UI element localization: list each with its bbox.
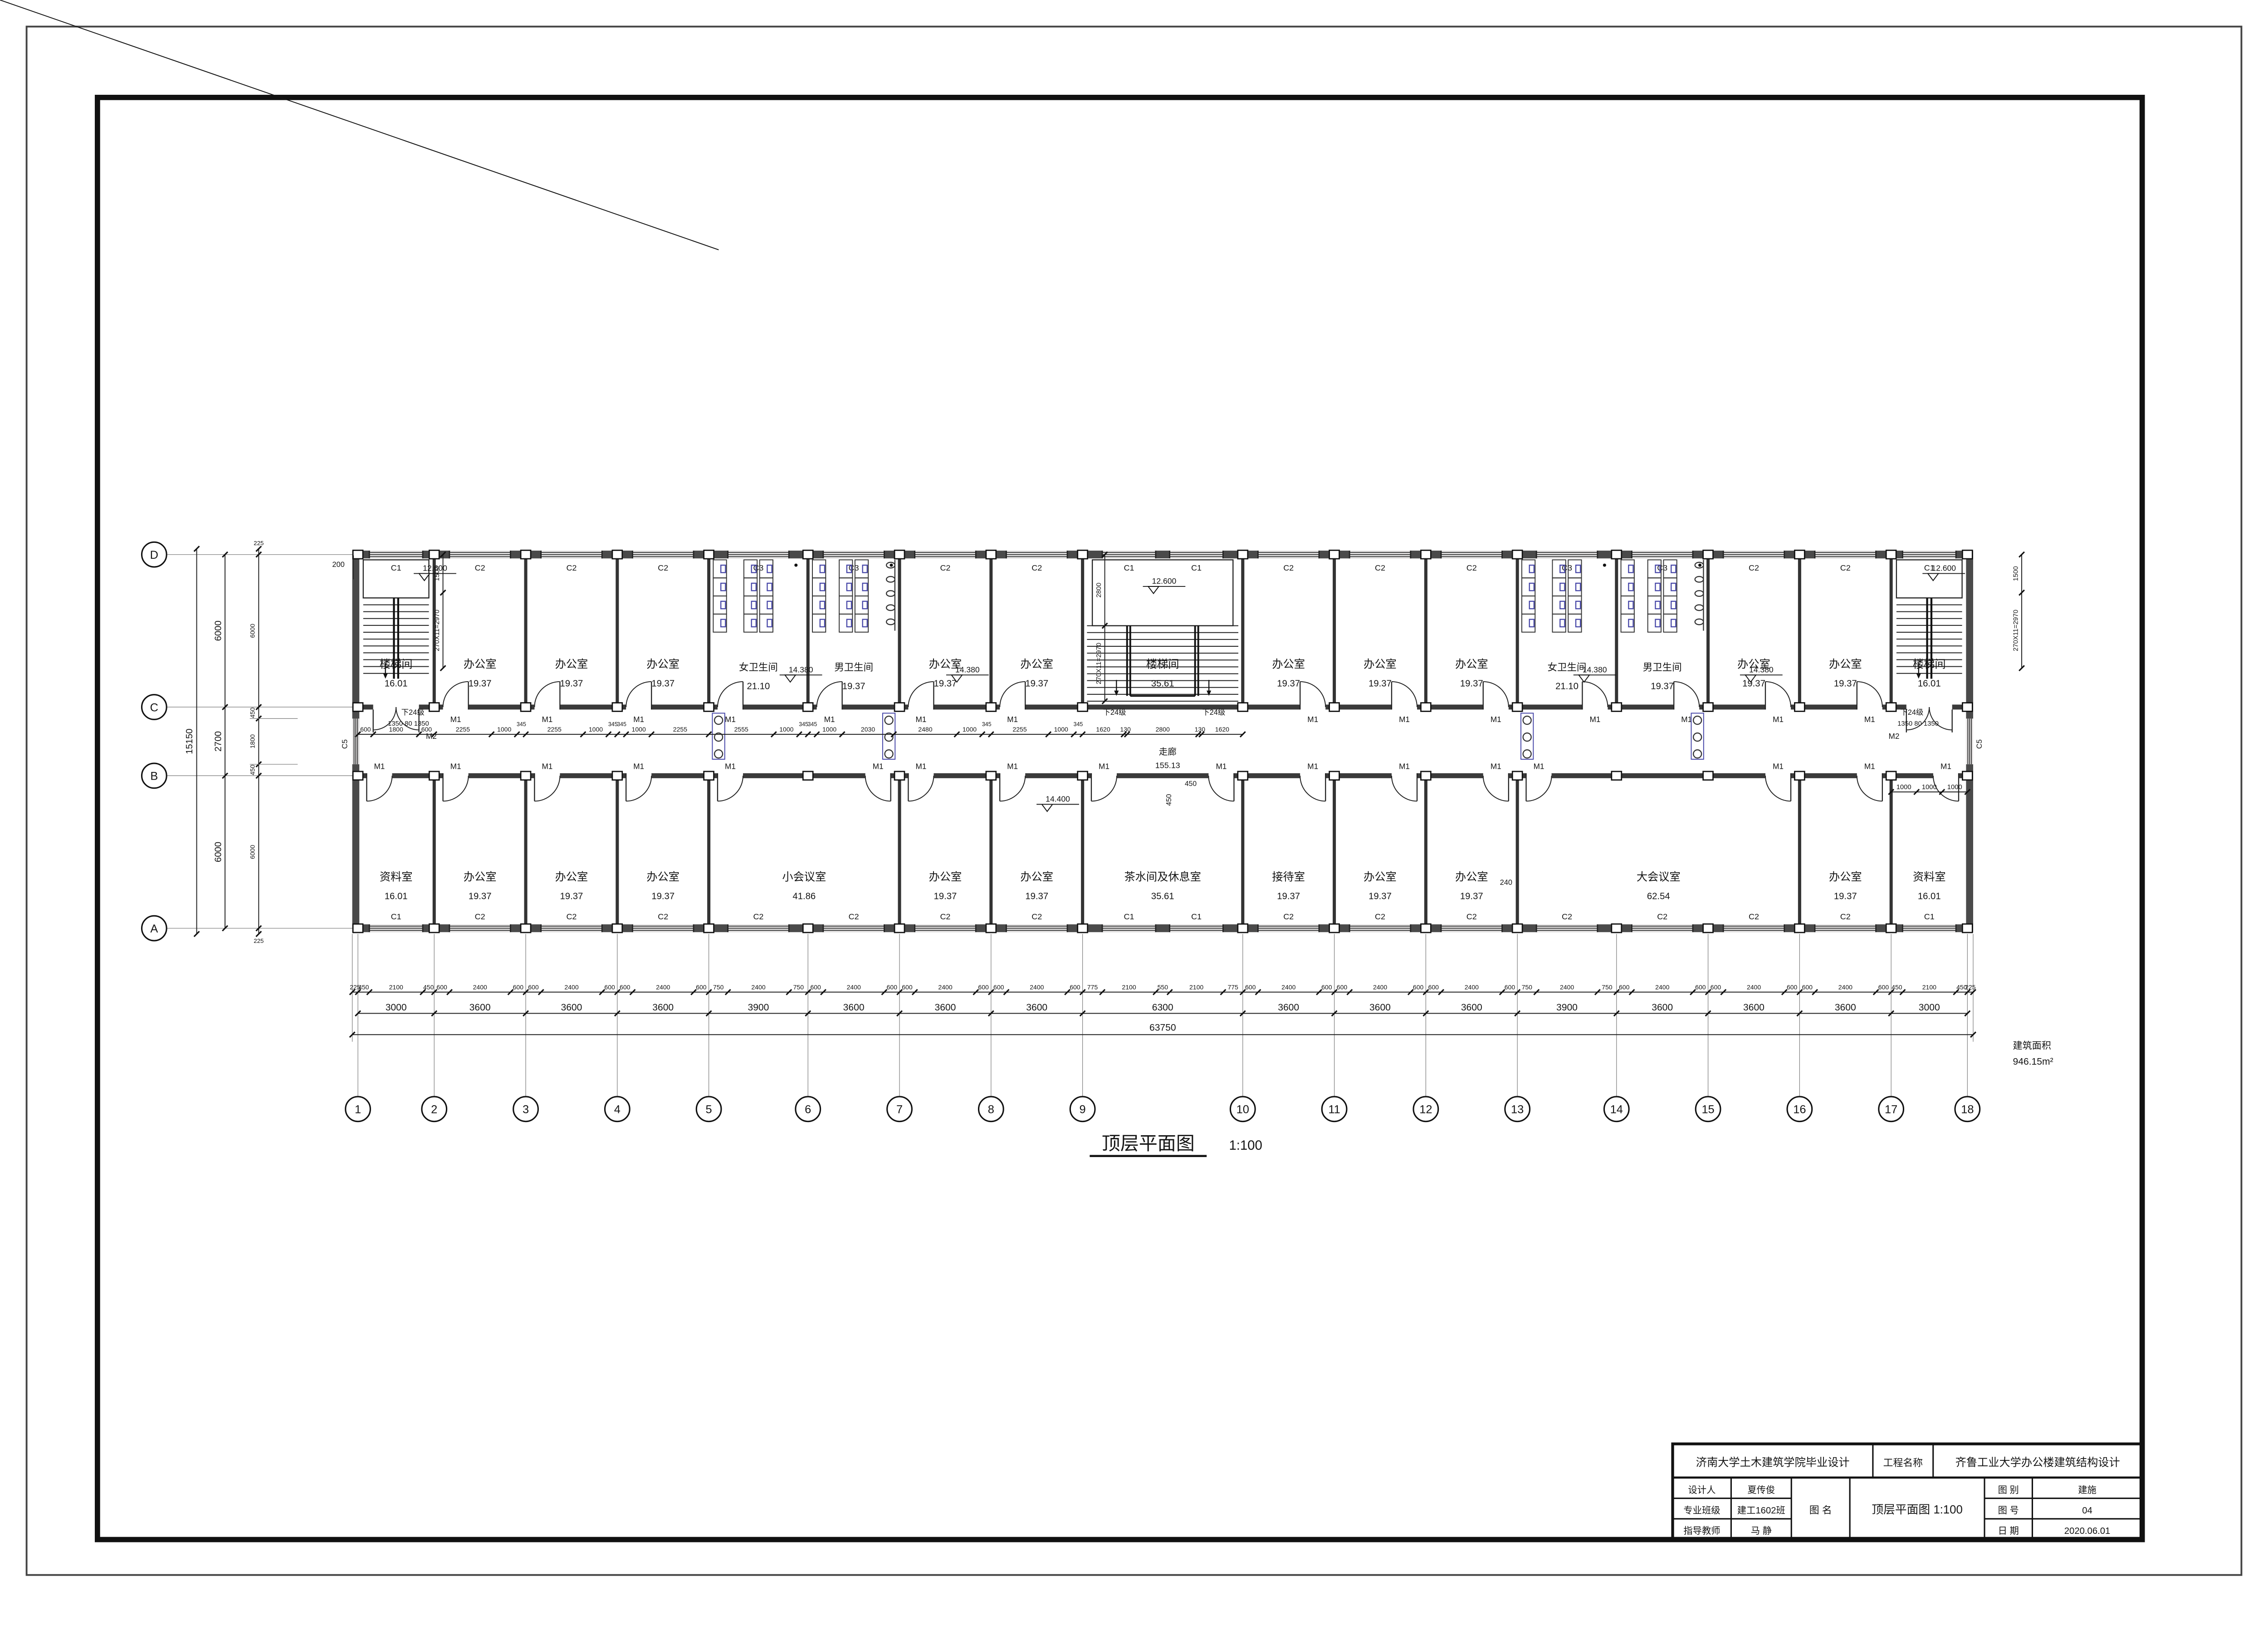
window-tag: C2 bbox=[566, 912, 577, 921]
room-area: 19.37 bbox=[1369, 891, 1392, 901]
column bbox=[1421, 771, 1431, 780]
room-area: 19.37 bbox=[469, 891, 492, 901]
column bbox=[803, 924, 813, 932]
dim-value: 345 bbox=[517, 721, 526, 727]
window-tag-dot bbox=[1698, 564, 1701, 567]
door-tag-m1: M1 bbox=[1399, 715, 1410, 724]
window-tag: C2 bbox=[1749, 563, 1759, 572]
window-tag: C1 bbox=[1191, 563, 1202, 572]
dim-value: 2400 bbox=[1838, 983, 1853, 991]
room-name: 办公室 bbox=[464, 871, 497, 883]
column bbox=[1238, 550, 1248, 559]
dim-value: 270X11=2970 bbox=[2012, 610, 2019, 651]
door-opening bbox=[1933, 773, 1959, 779]
axis-bubble-label: 3 bbox=[523, 1103, 529, 1116]
door-tag-m1: M1 bbox=[1491, 715, 1501, 724]
dim-value: 600 bbox=[993, 983, 1004, 991]
axis-bubble-label: B bbox=[150, 770, 158, 783]
column bbox=[986, 703, 996, 712]
axis-bubble-label: 5 bbox=[706, 1103, 712, 1116]
dim-value: 3600 bbox=[1026, 1002, 1047, 1013]
dim-value: 2100 bbox=[1122, 983, 1136, 991]
column bbox=[1330, 924, 1339, 932]
window-tag: C3 bbox=[1657, 563, 1667, 572]
door-tag-m1: M1 bbox=[1534, 761, 1545, 771]
dim-value: 600 bbox=[528, 983, 539, 991]
column bbox=[1794, 703, 1804, 712]
column bbox=[704, 924, 714, 932]
axis-bubble-label: 15 bbox=[1701, 1103, 1714, 1116]
window-tag: C3 bbox=[1562, 563, 1572, 572]
dim-value: 2400 bbox=[751, 983, 765, 991]
door-tag-m1: M1 bbox=[1491, 761, 1501, 771]
window-tag: C1 bbox=[1124, 563, 1134, 572]
dim-value: 1800 bbox=[389, 726, 403, 733]
axis-bubble-label: 2 bbox=[431, 1103, 437, 1116]
dim-value: 600 bbox=[1878, 983, 1889, 991]
column bbox=[1612, 771, 1622, 780]
caption-scale: 1:100 bbox=[1229, 1138, 1262, 1153]
dim-value: 775 bbox=[1227, 983, 1238, 991]
wall-corridor-b bbox=[352, 773, 1973, 778]
room-name: 资料室 bbox=[1913, 871, 1946, 883]
project-name: 齐鲁工业大学办公楼建筑结构设计 bbox=[1955, 1456, 2120, 1469]
column bbox=[1962, 771, 1972, 780]
dim-value: 600 bbox=[1787, 983, 1798, 991]
drawing-name-label: 图 名 bbox=[1809, 1504, 1832, 1516]
axis-bubble-label: 17 bbox=[1885, 1103, 1897, 1116]
column bbox=[1078, 550, 1088, 559]
door-opening bbox=[443, 773, 469, 779]
dim-value: 2480 bbox=[918, 726, 932, 733]
dim-value: 1000 bbox=[963, 726, 977, 733]
column bbox=[1078, 703, 1088, 712]
column bbox=[1612, 703, 1622, 712]
column bbox=[1421, 924, 1431, 932]
window-tag-dot bbox=[890, 564, 893, 567]
door-opening bbox=[1091, 773, 1117, 779]
dim-value: 1500 bbox=[434, 566, 441, 581]
window-tag: C1 bbox=[1191, 912, 1202, 921]
column bbox=[1794, 550, 1804, 559]
dim-value: 2030 bbox=[861, 726, 875, 733]
door-opening bbox=[367, 773, 392, 779]
window-tag: C2 bbox=[658, 563, 668, 572]
room-area: 16.01 bbox=[385, 891, 408, 901]
door-opening bbox=[865, 773, 891, 779]
dim-value: 2400 bbox=[1560, 983, 1574, 991]
dim-450: 450 bbox=[1165, 794, 1173, 805]
column bbox=[1238, 924, 1248, 932]
room-name: 办公室 bbox=[646, 659, 679, 671]
wall-corridor-c bbox=[352, 705, 1973, 710]
column bbox=[894, 771, 904, 780]
door-opening bbox=[1392, 704, 1417, 710]
column bbox=[1794, 771, 1804, 780]
dim-value: 600 bbox=[421, 726, 432, 733]
column bbox=[1962, 703, 1972, 712]
dim-value: 270X11=2970 bbox=[1095, 643, 1103, 684]
room-area: 16.01 bbox=[385, 679, 408, 689]
room-area: 19.37 bbox=[934, 679, 957, 689]
dim-value: 2400 bbox=[1465, 983, 1479, 991]
axis-bubble-label: 11 bbox=[1328, 1103, 1340, 1116]
door-tag-m1: M1 bbox=[1773, 761, 1784, 771]
door-tag-m1: M1 bbox=[374, 761, 385, 771]
dim-value: 3600 bbox=[652, 1002, 674, 1013]
dim-value: 3900 bbox=[748, 1002, 769, 1013]
column bbox=[1612, 924, 1622, 932]
column bbox=[1886, 771, 1896, 780]
axis-bubble-label: 4 bbox=[614, 1103, 621, 1116]
down-steps-note: 下24级 bbox=[401, 708, 425, 717]
dim-value: 6000 bbox=[214, 620, 224, 641]
column bbox=[1703, 703, 1713, 712]
door-tag-m1: M1 bbox=[1307, 761, 1318, 771]
dim-value: 6000 bbox=[214, 842, 224, 862]
window-tag: C2 bbox=[1657, 912, 1667, 921]
column bbox=[1421, 703, 1431, 712]
dim-value: 225 bbox=[254, 540, 264, 547]
door-opening bbox=[1674, 704, 1699, 710]
dim-value: 1500 bbox=[2012, 566, 2019, 581]
room-name: 茶水间及休息室 bbox=[1124, 871, 1201, 883]
dim-value: 600 bbox=[1245, 983, 1256, 991]
room-name: 办公室 bbox=[1020, 659, 1053, 671]
dim-value: 1620 bbox=[1215, 726, 1229, 733]
level-value: 12.600 bbox=[1152, 576, 1177, 586]
level-value: 14.380 bbox=[955, 665, 980, 674]
dim-value: 2400 bbox=[564, 983, 578, 991]
dim-value: 6000 bbox=[249, 845, 256, 859]
dim-value: 1000 bbox=[1897, 784, 1911, 791]
dim-value: 345 bbox=[799, 721, 808, 727]
room-name: 办公室 bbox=[929, 871, 962, 883]
axis-bubble-label: 16 bbox=[1793, 1103, 1806, 1116]
dim-value: 600 bbox=[1321, 983, 1332, 991]
dim-value: 600 bbox=[810, 983, 821, 991]
room-name: 办公室 bbox=[1364, 871, 1397, 883]
window-tag: C2 bbox=[1283, 912, 1294, 921]
dim-value: 600 bbox=[1413, 983, 1424, 991]
area-note-label: 建筑面积 bbox=[2013, 1040, 2051, 1051]
door-opening bbox=[1000, 704, 1025, 710]
column bbox=[612, 703, 622, 712]
door-tag-m1: M1 bbox=[725, 761, 736, 771]
dim-value: 2255 bbox=[547, 726, 562, 733]
door-tag-m1: M1 bbox=[824, 715, 835, 724]
door-tag-m1: M1 bbox=[542, 761, 552, 771]
axis-bubble-label: 1 bbox=[355, 1103, 361, 1116]
down-steps-note: 下24级 bbox=[1103, 708, 1126, 717]
down-steps-note: 下24级 bbox=[1900, 708, 1923, 717]
door-tag-m1: M1 bbox=[1589, 715, 1600, 724]
door-tag-m1: M1 bbox=[1099, 761, 1110, 771]
no-value: 04 bbox=[2082, 1506, 2092, 1516]
column bbox=[353, 924, 363, 932]
column bbox=[1512, 924, 1522, 932]
dim-value: 600 bbox=[604, 983, 615, 991]
column bbox=[1330, 703, 1339, 712]
door-opening bbox=[1392, 773, 1417, 779]
dim-value: 3600 bbox=[1743, 1002, 1765, 1013]
dim-value: 2400 bbox=[1747, 983, 1761, 991]
door-tag-m1: M1 bbox=[1007, 761, 1018, 771]
column bbox=[704, 703, 714, 712]
door-tag-m2: M2 bbox=[1889, 732, 1900, 741]
dim-value: 3900 bbox=[1556, 1002, 1578, 1013]
room-area: 19.37 bbox=[1277, 891, 1300, 901]
dim-value: 225 bbox=[254, 937, 264, 944]
door-opening bbox=[443, 704, 469, 710]
column bbox=[1238, 771, 1248, 780]
door-opening bbox=[908, 773, 934, 779]
class-value: 建工1602班 bbox=[1737, 1505, 1785, 1516]
room-area: 19.37 bbox=[1369, 679, 1392, 689]
project-label: 工程名称 bbox=[1883, 1457, 1923, 1468]
window-tag: C2 bbox=[475, 912, 485, 921]
column bbox=[803, 550, 813, 559]
dim-value: 2100 bbox=[389, 983, 403, 991]
dim-value: 3600 bbox=[1652, 1002, 1673, 1013]
door-opening bbox=[1582, 704, 1608, 710]
door-tag-m1: M1 bbox=[1773, 715, 1784, 724]
door-tag-m1: M1 bbox=[542, 715, 552, 724]
window-tag: C2 bbox=[1840, 563, 1851, 572]
window-tag: C3 bbox=[753, 563, 763, 572]
door-tag-m1: M1 bbox=[1399, 761, 1410, 771]
dim-value: 2100 bbox=[1922, 983, 1936, 991]
dim-value: 450 bbox=[249, 765, 256, 776]
room-name: 办公室 bbox=[555, 659, 588, 671]
window-tag: C2 bbox=[566, 563, 577, 572]
axis-bubble-label: 14 bbox=[1610, 1103, 1623, 1116]
level-value: 12.600 bbox=[1931, 564, 1956, 573]
door-opening bbox=[1300, 773, 1325, 779]
column bbox=[353, 703, 363, 712]
dim-value: 3600 bbox=[1835, 1002, 1856, 1013]
level-value: 14.380 bbox=[789, 665, 813, 674]
axis-bubble-label: 8 bbox=[988, 1103, 994, 1116]
dim-value: 2555 bbox=[734, 726, 748, 733]
room-name: 办公室 bbox=[1020, 871, 1053, 883]
column bbox=[1512, 771, 1522, 780]
window-tag: C2 bbox=[1283, 563, 1294, 572]
door-tag-m1: M1 bbox=[1864, 761, 1875, 771]
column bbox=[1962, 924, 1972, 932]
dim-value: 2255 bbox=[456, 726, 470, 733]
dim-value: 2255 bbox=[673, 726, 687, 733]
room-name: 女卫生间 bbox=[1548, 662, 1587, 673]
dim-value: 3600 bbox=[1369, 1002, 1391, 1013]
dim-value: 1000 bbox=[822, 726, 836, 733]
window-tag: C2 bbox=[849, 912, 859, 921]
room-area: 19.37 bbox=[1834, 679, 1857, 689]
column bbox=[704, 771, 714, 780]
dim-value: 2400 bbox=[1281, 983, 1295, 991]
axis-bubble-label: 10 bbox=[1237, 1103, 1249, 1116]
class-label: 专业班级 bbox=[1683, 1505, 1720, 1516]
door-opening bbox=[1526, 773, 1551, 779]
dim-value: 600 bbox=[1428, 983, 1439, 991]
dim-value: 2400 bbox=[1373, 983, 1387, 991]
door-opening bbox=[1857, 773, 1882, 779]
dim-value: 600 bbox=[360, 726, 371, 733]
room-name: 办公室 bbox=[1272, 659, 1305, 671]
room-name: 接待室 bbox=[1272, 871, 1305, 883]
dim-value: 2400 bbox=[473, 983, 487, 991]
designer-label: 设计人 bbox=[1688, 1485, 1716, 1495]
room-area: 19.37 bbox=[1025, 891, 1048, 901]
door-tag-m1: M1 bbox=[633, 761, 644, 771]
level-value: 14.380 bbox=[1583, 665, 1607, 674]
room-name: 办公室 bbox=[1455, 659, 1488, 671]
dim-value: 1000 bbox=[632, 726, 646, 733]
window-tag: C2 bbox=[1562, 912, 1572, 921]
door-tag-m1: M1 bbox=[450, 761, 461, 771]
window-tag: C2 bbox=[1375, 563, 1385, 572]
dim-value: 345 bbox=[982, 721, 992, 727]
caption-title: 顶层平面图 bbox=[1102, 1133, 1195, 1154]
dim-value: 600 bbox=[696, 983, 707, 991]
room-area: 19.37 bbox=[842, 682, 865, 692]
dim-value: 1000 bbox=[1922, 784, 1937, 791]
window-tag: C2 bbox=[940, 912, 950, 921]
room-name: 办公室 bbox=[1364, 659, 1397, 671]
door-opening bbox=[1483, 773, 1509, 779]
column bbox=[1330, 771, 1339, 780]
column bbox=[521, 703, 531, 712]
dim-total: 15150 bbox=[185, 728, 195, 754]
door-tag-m1: M1 bbox=[725, 715, 736, 724]
room-name: 办公室 bbox=[1829, 871, 1862, 883]
door-opening bbox=[1765, 773, 1791, 779]
axis-bubble-label: 9 bbox=[1080, 1103, 1086, 1116]
room-area: 19.37 bbox=[934, 891, 957, 901]
room-name: 资料室 bbox=[380, 871, 413, 883]
column bbox=[429, 703, 439, 712]
dim-value: 6000 bbox=[249, 624, 256, 638]
dim-value: 600 bbox=[1337, 983, 1348, 991]
dim-value: 1000 bbox=[589, 726, 603, 733]
dim-value: 345 bbox=[617, 721, 626, 727]
column bbox=[894, 703, 904, 712]
window-tag: C1 bbox=[1924, 912, 1935, 921]
column bbox=[894, 550, 904, 559]
dim-value: 600 bbox=[1695, 983, 1706, 991]
room-name: 办公室 bbox=[646, 871, 679, 883]
column bbox=[1886, 924, 1896, 932]
axis-bubble-label: 18 bbox=[1961, 1103, 1974, 1116]
corridor-name: 走廊 bbox=[1159, 747, 1177, 757]
room-name: 楼梯间 bbox=[1913, 659, 1946, 671]
door-opening bbox=[1300, 704, 1325, 710]
window-tag: C2 bbox=[1375, 912, 1385, 921]
door-opening bbox=[534, 773, 560, 779]
room-name: 楼梯间 bbox=[380, 659, 413, 671]
door-tag-m1: M1 bbox=[1681, 715, 1692, 724]
door-tag-m1: M1 bbox=[915, 715, 926, 724]
column bbox=[704, 550, 714, 559]
column bbox=[612, 771, 622, 780]
dim-value: 225 bbox=[1965, 983, 1976, 991]
room-area: 19.37 bbox=[1651, 682, 1674, 692]
room-name: 小会议室 bbox=[782, 871, 826, 883]
dim-value: 600 bbox=[1711, 983, 1721, 991]
no-label: 图 号 bbox=[1998, 1506, 2019, 1516]
advisor-value: 马 静 bbox=[1751, 1526, 1772, 1536]
dim-value: 130 bbox=[1120, 726, 1131, 733]
dim-value: 600 bbox=[1619, 983, 1630, 991]
dim-value: 2400 bbox=[847, 983, 861, 991]
column bbox=[353, 550, 363, 559]
dim-value: 2400 bbox=[656, 983, 670, 991]
column bbox=[429, 771, 439, 780]
dim-value: 450 bbox=[423, 983, 434, 991]
dim-value: 345 bbox=[1074, 721, 1083, 727]
axis-bubble-label: 13 bbox=[1511, 1103, 1524, 1116]
dim-value: 3600 bbox=[843, 1002, 865, 1013]
axis-bubble-label: D bbox=[150, 549, 158, 561]
window-tag: C3 bbox=[849, 563, 859, 572]
room-name: 办公室 bbox=[1829, 659, 1862, 671]
column bbox=[986, 550, 996, 559]
dim-value: 2800 bbox=[1095, 583, 1103, 598]
room-area: 19.37 bbox=[469, 679, 492, 689]
dim-value: 6300 bbox=[1152, 1002, 1173, 1013]
column bbox=[1703, 924, 1713, 932]
type-value: 建施 bbox=[2078, 1485, 2097, 1495]
axis-bubble-label: A bbox=[150, 922, 158, 935]
window-tag: C1 bbox=[391, 563, 401, 572]
window-tag: C2 bbox=[658, 912, 668, 921]
door-opening bbox=[534, 704, 560, 710]
dim-value: 600 bbox=[887, 983, 898, 991]
room-area: 19.37 bbox=[1460, 679, 1483, 689]
window-tag: C1 bbox=[1124, 912, 1134, 921]
window-tag: C1 bbox=[391, 912, 401, 921]
column bbox=[986, 771, 996, 780]
dim-value: 3600 bbox=[469, 1002, 491, 1013]
room-name: 女卫生间 bbox=[739, 662, 778, 673]
door-tag-m1: M1 bbox=[633, 715, 644, 724]
column bbox=[521, 550, 531, 559]
dim-value: 3600 bbox=[1461, 1002, 1482, 1013]
dim-total: 63750 bbox=[1149, 1023, 1176, 1033]
dim-value: 775 bbox=[1087, 983, 1098, 991]
stair-width-note: 1350 80 1350 bbox=[1897, 720, 1939, 727]
column bbox=[1886, 703, 1896, 712]
room-area: 62.54 bbox=[1647, 891, 1670, 901]
date-label: 日 期 bbox=[1998, 1526, 2019, 1536]
dim-value: 750 bbox=[1522, 983, 1533, 991]
dim-value: 270X11=2970 bbox=[434, 610, 441, 651]
dim-value: 600 bbox=[620, 983, 631, 991]
dim-value: 550 bbox=[1158, 983, 1168, 991]
school-name: 济南大学土木建筑学院毕业设计 bbox=[1696, 1456, 1850, 1469]
dim-value: 750 bbox=[793, 983, 804, 991]
window-tag: C2 bbox=[1466, 563, 1477, 572]
axis-bubble-label: 7 bbox=[896, 1103, 903, 1116]
column bbox=[1962, 550, 1972, 559]
dim-value: 600 bbox=[902, 983, 913, 991]
corridor-area: 155.13 bbox=[1155, 761, 1180, 770]
door-opening bbox=[626, 704, 651, 710]
date-value: 2020.06.01 bbox=[2064, 1526, 2111, 1536]
door-tag-m1: M1 bbox=[1307, 715, 1318, 724]
axis-bubble-label: 6 bbox=[805, 1103, 811, 1116]
window-tag: C2 bbox=[940, 563, 950, 572]
